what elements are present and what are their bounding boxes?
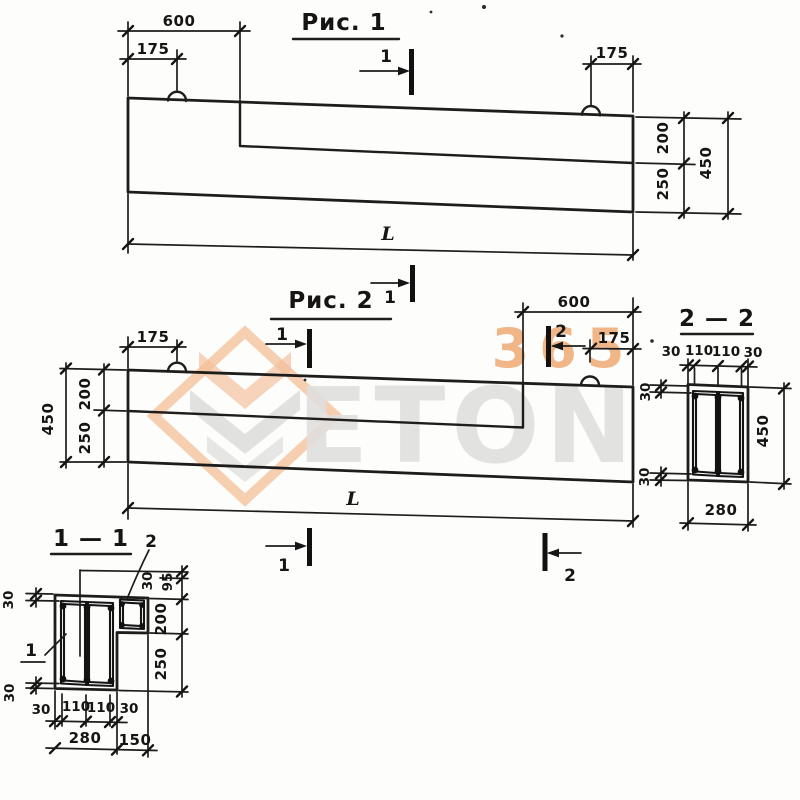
rebar-dot: [108, 605, 115, 612]
section11-outline: [55, 595, 148, 690]
rebar-dot: [139, 623, 145, 629]
section11-ledge-cage: [119, 600, 145, 630]
figure2-cut1-bottom-label: 1: [278, 556, 290, 576]
section22-dim280-line: [680, 523, 756, 525]
section11-bottomdim-3: 30: [120, 701, 139, 717]
section11-cage-label: 1: [25, 641, 37, 661]
figure1-rightdims-extlines: [636, 117, 741, 214]
rebar-dot: [84, 677, 91, 684]
section22-topdim-1: 110: [685, 343, 713, 359]
section11-stirrup-right: [86, 602, 113, 686]
rebar-dot: [119, 601, 125, 607]
rebar-dot: [715, 468, 722, 475]
figure1-dim200: 200: [654, 122, 672, 155]
section-1-1: 1 — 1 2 1: [1, 526, 188, 757]
section22-cover-bottom: 30: [637, 468, 653, 487]
section11-cover-top: 30: [1, 591, 17, 610]
section22-topdim-3: 30: [744, 345, 763, 361]
figure1-dim600: 600: [163, 12, 196, 30]
figure1-title: Рис. 1: [301, 10, 386, 36]
figure2-dim200: 200: [76, 378, 94, 411]
section11-title: 1 — 1: [53, 526, 129, 552]
figure2-cut2-bottom: 2: [545, 533, 581, 586]
figure2-cut1-bottom: 1: [266, 528, 310, 576]
figure1-dimL-line: [128, 244, 633, 255]
rebar-dot: [60, 603, 67, 610]
figure1-dim450: 450: [697, 147, 715, 180]
figure2-dim175r: 175: [598, 329, 631, 347]
figure1-cut-bottom-arrowhead-icon: [398, 279, 410, 288]
rebar-dot: [715, 394, 722, 401]
section22-title: 2 — 2: [679, 306, 755, 332]
section-2-2: 2 — 2 30 110 110 30 30 30: [637, 306, 791, 531]
section22-stirrup-left: [693, 391, 719, 476]
figure2-cut1-bottom-arrowhead-icon: [295, 542, 307, 551]
section22-cover-top: 30: [638, 383, 654, 402]
section11-rightdim-30: 30: [140, 572, 156, 591]
figure2-dim250: 250: [76, 422, 94, 455]
figure2-dimL-line: [128, 508, 633, 521]
section11-bottomdim-2: 110: [87, 700, 115, 716]
figure1-dim175r: 175: [596, 44, 629, 62]
section11-rightdim-200: 200: [152, 603, 170, 636]
section22-dim450: 450: [754, 415, 772, 448]
figure1-dim250: 250: [654, 168, 672, 201]
section11-dim280: 280: [69, 729, 102, 747]
figure2-dim600: 600: [558, 293, 591, 311]
section11-ledge-label: 2: [145, 532, 157, 552]
figure1-cut-bottom-label: 1: [384, 288, 396, 308]
rebar-dot: [119, 622, 125, 628]
scanned-drawing-page: 365 ETON Рис. 1 600 175 175 1: [0, 0, 800, 800]
figure1-dimL: L: [380, 223, 394, 245]
section22-rebar-cage: [692, 391, 745, 477]
figure2-dimL: L: [345, 488, 359, 510]
section11-rightdim-250: 250: [152, 648, 170, 681]
rebar-dot: [84, 604, 91, 611]
figure1-cut-bottom: 1: [371, 265, 413, 308]
section11-bottomdim-0: 30: [32, 702, 51, 718]
section11-cover-bottom: 30: [2, 684, 18, 703]
rebar-dot: [692, 467, 699, 474]
figure1-cut-top: 1: [360, 47, 412, 95]
rebar-dot: [139, 602, 145, 608]
figure1-cut-top-label: 1: [380, 47, 392, 67]
section11-rightdim-95: 95: [160, 573, 176, 592]
rebar-dot: [692, 393, 699, 400]
figure1-dim600-extlines: [128, 22, 240, 99]
figure1-dim175l: 175: [137, 40, 170, 58]
figure1-cut-top-arrowhead-icon: [398, 67, 410, 76]
figure2-cut2-bottom-arrowhead-icon: [547, 549, 559, 558]
figure1: Рис. 1 600 175 175 1 200: [118, 10, 741, 308]
rebar-dot: [738, 469, 745, 476]
figure2-title: Рис. 2: [288, 288, 373, 314]
figure2-cut2-top-label: 2: [555, 322, 567, 342]
rebar-dot: [108, 678, 115, 685]
figure2-cut1-top-label: 1: [276, 325, 288, 345]
section22-topdim-0: 30: [662, 344, 681, 360]
figure2-cut1-top-arrowhead-icon: [295, 340, 307, 349]
figure2-cut2-bottom-label: 2: [564, 566, 576, 586]
figure1-beam-outline: [128, 98, 633, 212]
section22-stirrup-right: [717, 392, 743, 477]
section11-stirrup-left: [61, 601, 88, 685]
figure2-dim450: 450: [39, 403, 57, 436]
drawing-canvas: 365 ETON Рис. 1 600 175 175 1: [0, 0, 800, 800]
section22-topdim-2: 110: [712, 344, 740, 360]
section22-dim280: 280: [705, 501, 738, 519]
rebar-dot: [60, 676, 67, 683]
figure2-dim175l: 175: [137, 328, 170, 346]
section11-bottomdim-1: 110: [62, 699, 90, 715]
rebar-dot: [738, 395, 745, 402]
section22-cover-extlines: [650, 385, 691, 481]
section11-dim150: 150: [119, 731, 152, 749]
section11-rebar-cage: [60, 601, 115, 686]
